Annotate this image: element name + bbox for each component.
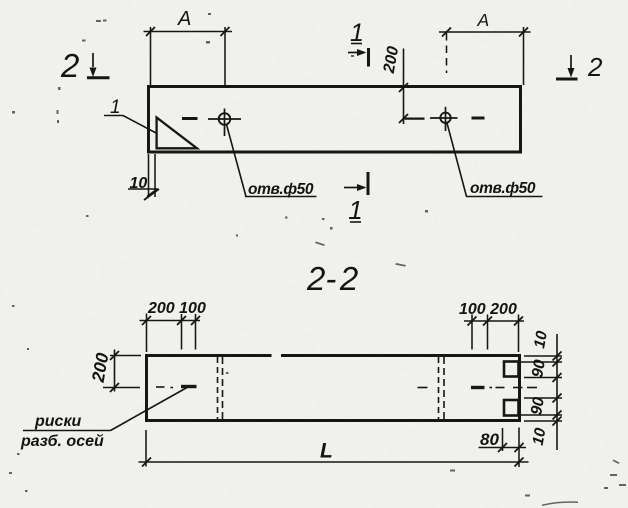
svg-text:отв.ф50: отв.ф50: [470, 180, 536, 197]
svg-text:2: 2: [587, 52, 603, 82]
svg-text:100 200: 100 200: [459, 301, 517, 318]
svg-text:риски: риски: [34, 413, 82, 430]
svg-text:200 100: 200 100: [147, 300, 206, 317]
svg-text:разб. осей: разб. осей: [20, 433, 104, 450]
svg-text:10: 10: [531, 329, 551, 349]
svg-text:90: 90: [529, 358, 549, 379]
svg-text:2: 2: [60, 47, 79, 84]
svg-text:L: L: [320, 440, 333, 463]
svg-text:1: 1: [348, 195, 362, 225]
svg-text:80: 80: [480, 430, 499, 449]
svg-text:1: 1: [350, 19, 364, 47]
svg-text:2-2: 2-2: [306, 260, 358, 297]
svg-text:отв.ф50: отв.ф50: [248, 181, 314, 198]
svg-text:90: 90: [528, 396, 548, 417]
svg-text:А: А: [177, 8, 191, 30]
svg-text:А: А: [477, 10, 490, 30]
svg-text:10: 10: [130, 175, 148, 192]
svg-text:1: 1: [110, 97, 121, 118]
svg-text:10: 10: [530, 426, 550, 446]
